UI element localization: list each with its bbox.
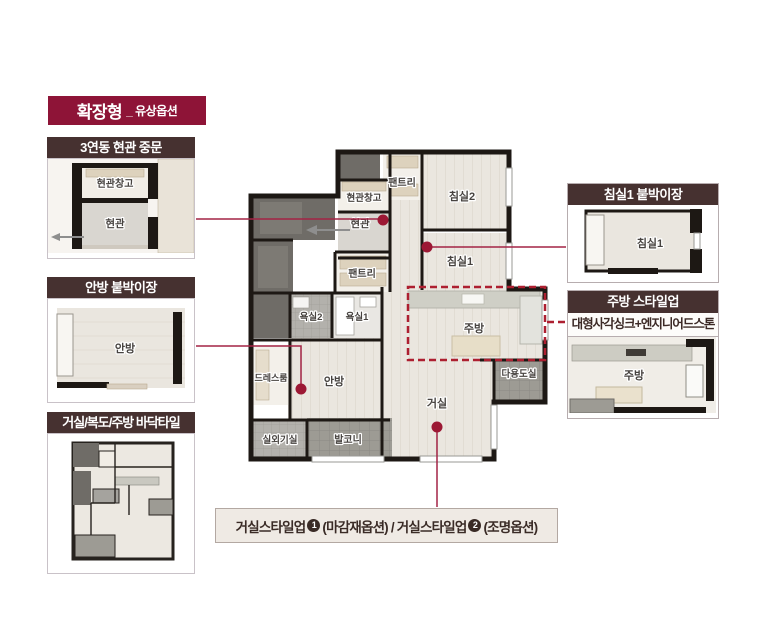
callout-bed1-closet-header: 침실1 붙박이장: [568, 184, 718, 205]
living-styleup-note: 거실스타일업 1 (마감재옵션) / 거실스타일업 2 (조명옵션): [215, 508, 558, 543]
room-dark-top: [338, 152, 380, 180]
label-outdoor-unit: 실외기실: [263, 434, 298, 446]
title-badge-sub: _ 유상옵션: [126, 102, 177, 119]
callout-master-closet: 안방 붙박이장 안방: [47, 277, 195, 403]
note-part1: 거실스타일업: [236, 516, 306, 536]
label-master: 안방: [324, 374, 344, 388]
callout-entrance-door-header: 3연동 현관 중문: [47, 137, 195, 158]
label-bedroom2: 침실2: [449, 189, 475, 203]
label-entrance-storage: 현관창고: [347, 192, 382, 204]
mini-label-master: 안방: [115, 341, 135, 355]
note-part2: (마감재옵션) / 거실스타일업: [322, 516, 466, 536]
callout-floor-tile: 거실/복도/주방 바닥타일: [47, 412, 195, 574]
callout-kitchen-styleup-header: 주방 스타일업: [568, 291, 718, 313]
mini-label-bedroom1: 침실1: [637, 236, 663, 250]
label-pantry-mid: 팬트리: [348, 267, 376, 280]
label-bedroom1: 침실1: [447, 254, 473, 268]
callout-bed1-closet-image: 침실1: [568, 205, 718, 282]
callout-bed1-closet: 침실1 붙박이장 침실1: [567, 183, 719, 283]
title-badge-main: 확장형: [77, 98, 122, 123]
room-utility: [494, 360, 545, 402]
callout-master-closet-image: 안방: [47, 298, 195, 403]
callout-master-closet-header: 안방 붙박이장: [47, 277, 195, 298]
kitchen-island: [452, 336, 500, 356]
callout-entrance-door-image: 현관창고 현관: [47, 158, 195, 259]
callout-kitchen-styleup: 주방 스타일업 대형사각싱크+엔지니어드스톤 주방: [567, 290, 719, 419]
label-pantry-top: 팬트리: [388, 176, 416, 189]
circled-1-icon: 1: [307, 519, 320, 532]
callout-entrance-door: 3연동 현관 중문 현관창고 현관: [47, 137, 195, 259]
page: 팬트리 침실2 현관창고 현관 침실1 팬트리 욕실2 욕실1 주방 안방 드레…: [0, 0, 760, 640]
label-utility: 다용도실: [502, 368, 537, 380]
note-part3: (조명옵션): [483, 516, 537, 536]
mini-label-entrance-storage: 현관창고: [97, 177, 134, 190]
label-living: 거실: [427, 396, 447, 410]
kitchen-appliance: [520, 296, 542, 344]
mini-label-kitchen: 주방: [624, 368, 644, 382]
callout-floor-tile-image: [47, 433, 195, 574]
label-balcony: 발코니: [334, 433, 362, 446]
callout-kitchen-styleup-subtitle: 대형사각싱크+엔지니어드스톤: [568, 313, 718, 337]
label-bath1: 욕실1: [346, 311, 369, 323]
title-badge: 확장형 _ 유상옵션: [48, 96, 206, 125]
mini-label-entrance: 현관: [105, 217, 125, 230]
circled-2-icon: 2: [468, 519, 481, 532]
label-bath2: 욕실2: [300, 311, 323, 323]
callout-floor-tile-header: 거실/복도/주방 바닥타일: [47, 412, 195, 433]
callout-kitchen-styleup-image: 주방: [568, 337, 718, 418]
label-dressroom: 드레스룸: [254, 372, 287, 383]
label-kitchen: 주방: [464, 321, 484, 335]
